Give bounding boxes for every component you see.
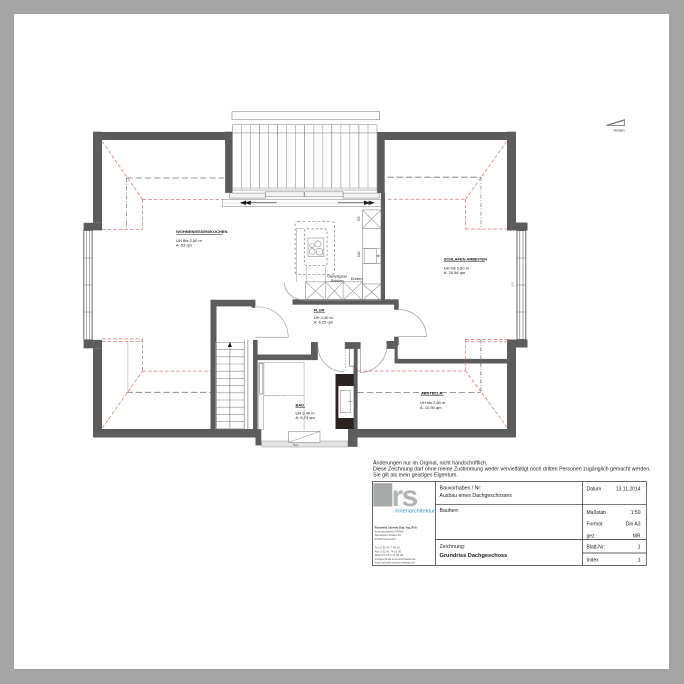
svg-text:Änderungen nur im Orginal, nic: Änderungen nur im Orginal, nicht handsch…: [373, 459, 488, 466]
svg-text:Sie gilt als mein geistiges Ei: Sie gilt als mein geistiges Eigentum.: [373, 472, 458, 478]
svg-text:1: 1: [638, 545, 641, 551]
svg-text:Din A3: Din A3: [626, 522, 641, 528]
svg-text:Bauherr:: Bauherr:: [440, 508, 460, 514]
svg-text:Maßstab: Maßstab: [587, 510, 607, 516]
svg-text:33330 Gütersloh: 33330 Gütersloh: [375, 537, 396, 541]
svg-text:Grundriss Dachgeschoss: Grundriss Dachgeschoss: [440, 553, 508, 559]
svg-text:BAD: BAD: [296, 402, 305, 407]
svg-text:Datum: Datum: [587, 486, 602, 492]
svg-text:MW: MW: [357, 251, 361, 257]
svg-text:A: 29,56 qm: A: 29,56 qm: [444, 270, 466, 275]
svg-text:gez: gez: [587, 534, 596, 540]
svg-text:Backen: Backen: [331, 279, 344, 283]
svg-text:Bauvorhaben / Nr:: Bauvorhaben / Nr:: [440, 485, 482, 491]
svg-text:Ausbau eines Dachgeschosses: Ausbau eines Dachgeschosses: [440, 493, 513, 499]
svg-text:A: 6,25 qm: A: 6,25 qm: [314, 320, 334, 325]
svg-text:SCHLAFEN ARBEITEN: SCHLAFEN ARBEITEN: [444, 256, 487, 261]
svg-text:WOHNEN/ESSEN/KOCHEN: WOHNEN/ESSEN/KOCHEN: [176, 229, 227, 234]
svg-text:Index: Index: [587, 557, 600, 563]
svg-text:www.schmitt-innenarchitektur.d: www.schmitt-innenarchitektur.de: [375, 561, 416, 565]
svg-text:Kühlen: Kühlen: [351, 277, 363, 281]
svg-text:ABSTELLR.: ABSTELLR.: [421, 390, 443, 395]
svg-text:A: 6,74 qm: A: 6,74 qm: [296, 415, 316, 420]
svg-text:Norden: Norden: [614, 129, 625, 133]
svg-text:Zeichnung:: Zeichnung:: [440, 544, 466, 550]
svg-text:FLUR: FLUR: [314, 308, 325, 313]
svg-text:MR: MR: [633, 534, 641, 540]
svg-text:Blatt-Nr:: Blatt-Nr:: [587, 545, 605, 551]
svg-text:A: 10,90 qm: A: 10,90 qm: [420, 405, 442, 410]
svg-text:13.11.2014: 13.11.2014: [616, 486, 641, 492]
svg-text:GS: GS: [357, 216, 361, 221]
svg-text:Format: Format: [587, 522, 603, 528]
svg-text:2,13: 2,13: [511, 281, 515, 287]
svg-text:.1: .1: [636, 557, 640, 563]
svg-text:innenarchitektur: innenarchitektur: [395, 508, 435, 514]
svg-text:BxH: BxH: [294, 443, 299, 447]
svg-text:1:50: 1:50: [631, 510, 641, 516]
svg-text:A: 53 qm: A: 53 qm: [176, 243, 193, 248]
